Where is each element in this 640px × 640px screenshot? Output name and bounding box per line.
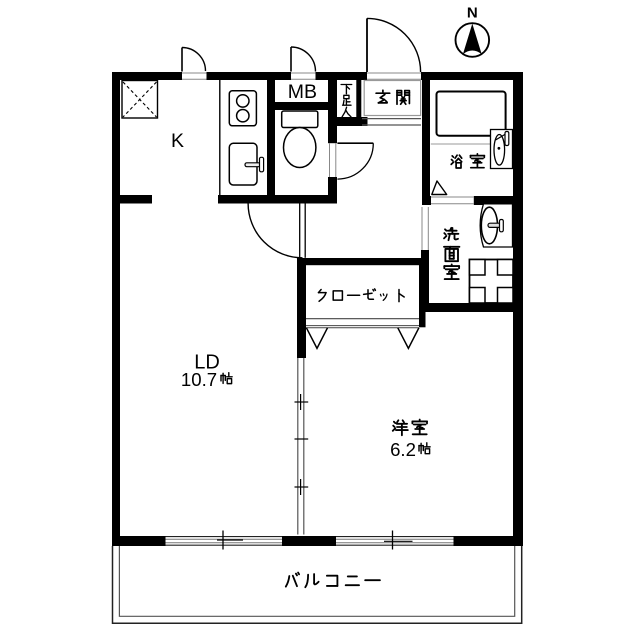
svg-text:10.7: 10.7 bbox=[181, 369, 217, 390]
svg-text:MB: MB bbox=[288, 81, 317, 103]
svg-text:K: K bbox=[171, 130, 184, 152]
svg-text:N: N bbox=[467, 5, 478, 22]
svg-text:6.2: 6.2 bbox=[390, 439, 416, 460]
